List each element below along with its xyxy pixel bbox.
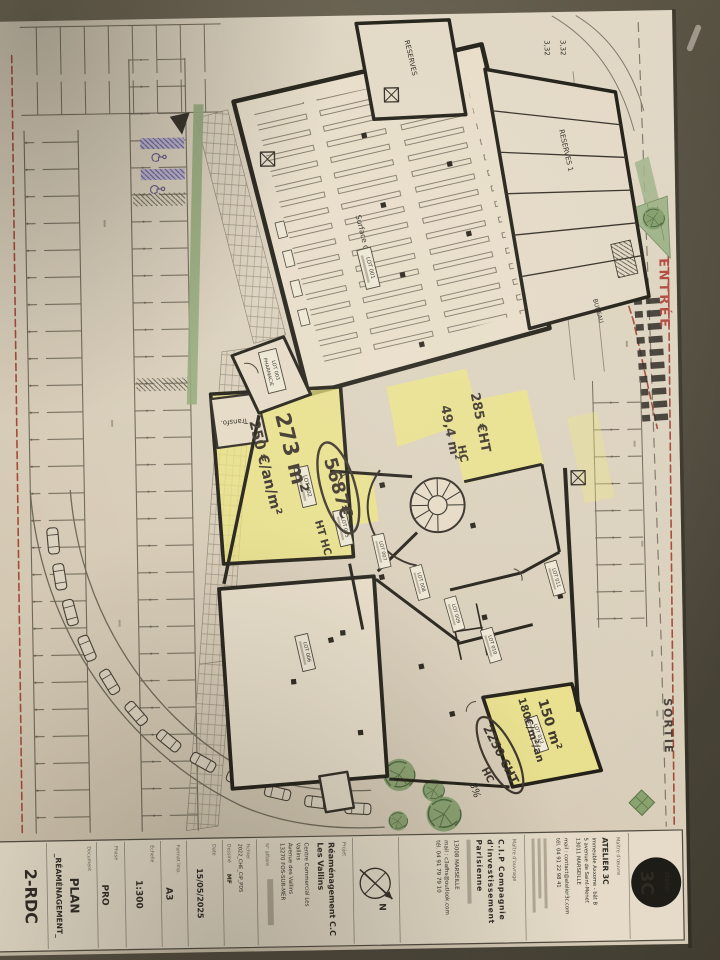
plan-photo-svg: 3,32 3,32 ENTRÉE SORTIE RESERVES RESERVE… <box>0 0 720 960</box>
photo-of-floor-plan: 3,32 3,32 ENTRÉE SORTIE RESERVES RESERVE… <box>0 0 720 960</box>
photo-warm-tint <box>0 0 720 960</box>
